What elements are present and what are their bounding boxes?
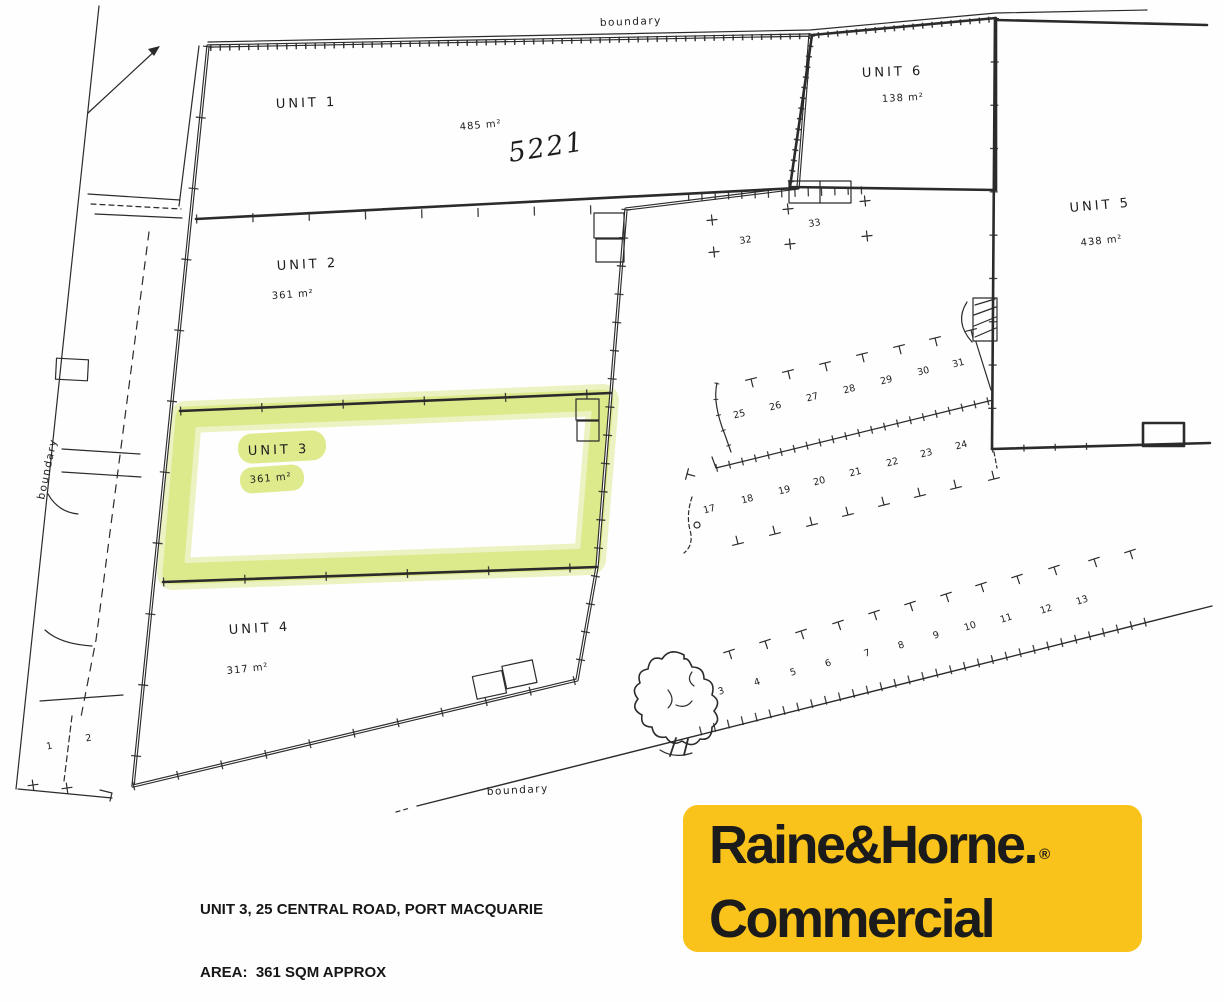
parking-space-number: 33: [808, 217, 822, 230]
parking-space-number: 20: [812, 475, 826, 489]
yard-parking-group: 32 33: [707, 196, 873, 258]
unit1-unit2-wall: [196, 188, 798, 219]
unit-5-label: UNIT 5: [1069, 196, 1131, 216]
b-marks: [686, 469, 1000, 546]
boundary-label-left: boundary: [35, 437, 60, 500]
parking-space-number: 31: [951, 357, 965, 371]
t-marks: [724, 549, 1138, 660]
registered-trademark-icon: ®: [1039, 846, 1050, 863]
unit-1-handwritten-note: 5221: [506, 126, 587, 169]
parking-space-number: 2: [85, 733, 93, 745]
road-end-line: [18, 789, 112, 798]
parking-space-number: 29: [879, 374, 893, 388]
unit-5-group: UNIT 5 438 m²: [962, 18, 1210, 449]
kerb-lines: [62, 449, 141, 477]
parking-space-number: 21: [848, 466, 862, 480]
right-dashed-link: [994, 452, 997, 468]
front-fence-line: [179, 46, 199, 206]
parking-space-number: 28: [842, 383, 856, 397]
row-left-edge: [716, 383, 731, 452]
unit2-corner-rooms: [594, 213, 624, 262]
parking-space-number: 32: [739, 234, 753, 247]
raine-and-horne-logo: Raine&Horne.® Commercial: [683, 805, 1142, 952]
caption-line-2: AREA: 361 SQM APPROX: [200, 962, 543, 983]
parking-space-number: 30: [916, 365, 930, 379]
unit-1-area: 485 m²: [459, 118, 502, 133]
wall-hatching-u12: [196, 209, 626, 219]
parking-space-number: 11: [999, 612, 1014, 626]
parking-space-number: 3: [717, 685, 726, 697]
tree: [634, 652, 717, 756]
parking-space-number: 6: [824, 657, 833, 669]
boundary-label-bottom: boundary: [487, 783, 550, 798]
parking-kerb-line: [712, 400, 993, 468]
road-cross-line: [40, 695, 123, 701]
unit-5-area: 438 m²: [1080, 234, 1123, 249]
parking-space-number: 25: [732, 408, 746, 422]
parking-space-number: 24: [954, 439, 968, 453]
arrow-head: [148, 46, 160, 56]
parking-divider-line: [64, 716, 72, 781]
boundary-arrow: [88, 46, 160, 113]
parking-space-number: 4: [753, 676, 762, 688]
property-caption: UNIT 3, 25 CENTRAL ROAD, PORT MACQUARIE …: [200, 857, 543, 1002]
parking-space-number: 8: [897, 639, 906, 651]
survey-mark: [694, 522, 700, 528]
parking-space-number: 27: [805, 391, 819, 405]
caption-line-1: UNIT 3, 25 CENTRAL ROAD, PORT MACQUARIE: [200, 899, 543, 920]
parking-space-number: 23: [919, 447, 933, 461]
logo-brand-line: Raine&Horne.®: [709, 815, 1142, 889]
driveway-lines: [88, 194, 182, 218]
parking-space-number: 12: [1039, 603, 1054, 617]
boundary-lead-dashes: [396, 808, 410, 812]
unit-5-entry-rect: [1143, 423, 1184, 446]
kerb-returns: [45, 494, 92, 646]
unit-6-group: UNIT 6 138 m²: [789, 18, 996, 203]
scanned-site-plan-page: 1 2 boundary boundary UNIT 1: [0, 0, 1224, 1002]
unit-2-area: 361 m²: [271, 288, 314, 302]
unit-4-area: 317 m²: [226, 662, 269, 677]
unit-3-label: UNIT 3: [248, 442, 310, 459]
door-swing-arc: [962, 302, 972, 342]
arrow-shaft: [88, 49, 157, 113]
parking-space-number: 10: [963, 620, 978, 634]
parking-space-number: 19: [777, 484, 791, 498]
bottom-boundary-group: boundary 3 4 5 6 7 8 9 10 11 12 13: [396, 549, 1212, 812]
parking-space-number: 7: [863, 647, 872, 659]
driveway-dashed-line: [91, 204, 181, 209]
logo-division: Commercial: [709, 889, 1142, 949]
t-marks: [746, 329, 979, 388]
logo-brand: Raine&Horne.: [709, 815, 1036, 875]
parking-space-number: 5: [789, 666, 798, 678]
row-left-edge-ticks: [716, 383, 731, 452]
road-outer-boundary-line: [16, 6, 99, 789]
parking-space-number: 26: [768, 400, 782, 414]
unit-5-top-wall: [996, 20, 1207, 25]
parking-space-number: 17: [702, 503, 716, 517]
unit-4-label: UNIT 4: [228, 620, 290, 638]
boundary-parking-ticks: [700, 621, 1150, 731]
boundary-label-top: boundary: [600, 15, 662, 29]
parking-space-number: 13: [1075, 594, 1090, 608]
parking-space-number: 1: [45, 741, 53, 753]
middle-parking-row: 17 18 19 20 21 22 23 24: [684, 439, 999, 553]
upper-parking-row: 25 26 27 28 29 30 31: [712, 329, 993, 468]
parking-space-number: 22: [885, 456, 899, 470]
unit-2-label: UNIT 2: [276, 256, 338, 274]
unit-5-west-wall: [992, 18, 995, 449]
highlight-band-soft: [173, 400, 603, 574]
row-left-dashed-edge: [684, 497, 692, 553]
unit-1-label: UNIT 1: [276, 95, 338, 112]
unit-3-highlight: [173, 400, 603, 574]
boundary-line-bottom: [417, 606, 1212, 806]
parking-space-number: 9: [932, 629, 941, 641]
yard-space-marks: [707, 196, 873, 258]
parking-space-number: 18: [740, 493, 754, 507]
unit-6-area: 138 m²: [882, 92, 925, 105]
road-corner-bracket: [100, 790, 112, 801]
unit-6-label: UNIT 6: [862, 64, 924, 81]
